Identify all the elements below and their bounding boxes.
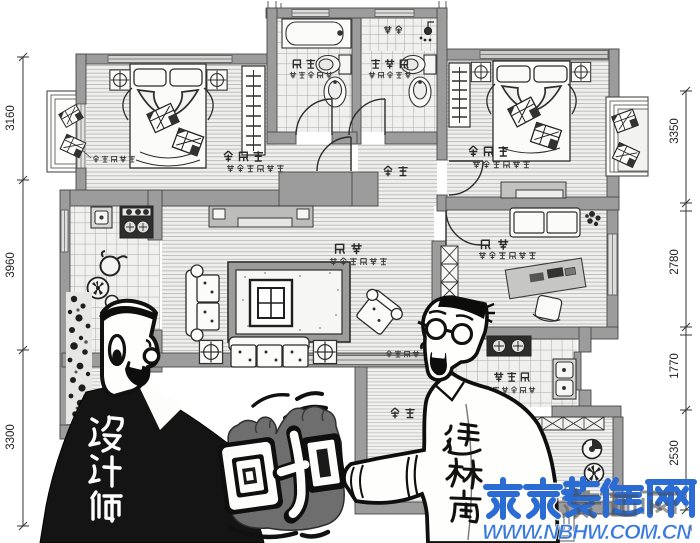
svg-text:3160: 3160: [5, 105, 17, 131]
svg-text:3960: 3960: [5, 252, 17, 278]
svg-text:3350: 3350: [669, 118, 681, 144]
svg-text:2530: 2530: [669, 440, 681, 466]
svg-text:2780: 2780: [669, 249, 681, 275]
svg-text:n: n: [688, 524, 692, 533]
svg-text:WWW.NBHW.COM.CN: WWW.NBHW.COM.CN: [482, 520, 692, 543]
svg-text:3300: 3300: [5, 424, 17, 450]
svg-text:1770: 1770: [669, 353, 681, 379]
